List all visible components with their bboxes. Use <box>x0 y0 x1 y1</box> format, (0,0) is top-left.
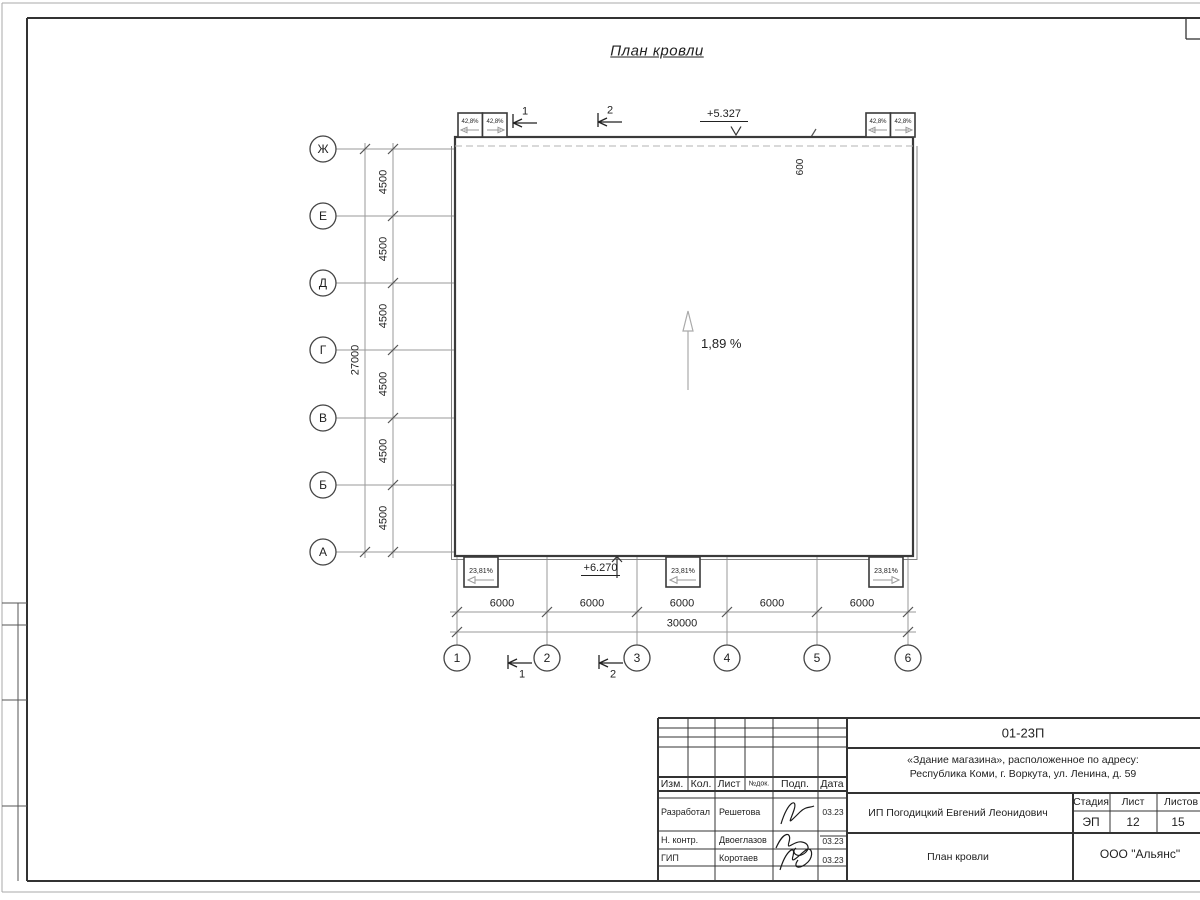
slope-label: 42,8% <box>486 119 504 125</box>
axis-col-label: 5 <box>814 652 821 664</box>
axis-col-label: 4 <box>724 652 731 664</box>
tb-header-podp: Подп. <box>781 779 809 790</box>
elevation-roof: +5.327 <box>700 109 748 122</box>
slope-label: 23,81% <box>874 568 898 575</box>
corner-cell <box>1186 18 1200 39</box>
tb-header-kol: Кол. <box>691 779 712 790</box>
axis-row-label: А <box>319 546 327 558</box>
axis-row-label: Е <box>319 210 327 222</box>
tb-name: Решетова <box>719 808 760 817</box>
drawing-title: План кровли <box>610 44 704 59</box>
dim-row: 4500 <box>379 170 390 194</box>
axis-col-label: 1 <box>454 652 461 664</box>
sheets-label: Листов <box>1164 797 1198 808</box>
dim-col: 6000 <box>850 599 874 610</box>
company-name: ООО "Альянс" <box>1100 848 1180 860</box>
tb-header-list: Лист <box>718 779 741 790</box>
tb-header-izm: Изм. <box>661 779 684 790</box>
section-mark-number: 2 <box>607 106 613 117</box>
slope-label: 42,8% <box>461 119 479 125</box>
axis-col-label: 2 <box>544 652 551 664</box>
axis-row-label: Б <box>319 479 327 491</box>
signatures <box>776 803 814 870</box>
stage-label: Стадия <box>1073 797 1109 808</box>
doc-number: 01-23П <box>1002 727 1045 740</box>
drawing-sheet: 42,8% 42,8% 42,8% 42,8% 23,81% 23,81% 23… <box>0 0 1200 900</box>
dim-col-total: 30000 <box>667 619 698 630</box>
dim-col: 6000 <box>670 599 694 610</box>
axis-row-label: Д <box>319 277 327 289</box>
dim-col: 6000 <box>490 599 514 610</box>
axis-row-label: Ж <box>317 143 328 155</box>
slope-label: 23,81% <box>469 568 493 575</box>
tb-header-ndok: №док. <box>749 781 770 788</box>
tb-role: Н. контр. <box>661 836 698 845</box>
sheets-value: 15 <box>1171 816 1184 828</box>
elevation-canopy: +6.270 <box>581 563 620 576</box>
dim-row: 4500 <box>379 372 390 396</box>
stage-value: ЭП <box>1082 816 1099 828</box>
axis-col-label: 6 <box>905 652 912 664</box>
tb-role: Разработал <box>661 808 710 817</box>
slope-label: 23,81% <box>671 568 695 575</box>
left-margin-cells <box>2 603 27 881</box>
section-mark-number: 2 <box>610 670 616 681</box>
object-address-line1: «Здание магазина», расположенное по адре… <box>907 755 1139 766</box>
canopy-labels-bottom: 23,81% 23,81% 23,81% <box>469 568 898 575</box>
dim-row-total: 27000 <box>351 345 362 376</box>
tb-date: 03.23 <box>822 856 843 865</box>
tb-name: Двоеглазов <box>719 836 767 845</box>
sheet-label: Лист <box>1122 797 1145 808</box>
overhang-dim: 600 <box>796 159 806 176</box>
sheet-title: План кровли <box>927 852 989 863</box>
slope-value: 1,89 % <box>701 337 741 350</box>
dim-row: 4500 <box>379 304 390 328</box>
axis-row-label: В <box>319 412 327 424</box>
dim-row: 4500 <box>379 506 390 530</box>
client-name: ИП Погодицкий Евгений Леонидович <box>868 808 1047 819</box>
sheet-value: 12 <box>1126 816 1139 828</box>
tb-date: 03.23 <box>822 808 843 817</box>
object-address-line2: Республика Коми, г. Воркута, ул. Ленина,… <box>910 769 1137 780</box>
tb-name: Коротаев <box>719 854 758 863</box>
building-outline <box>452 137 918 560</box>
tb-role: ГИП <box>661 854 679 863</box>
axis-row-label: Г <box>320 344 327 356</box>
tb-header-data: Дата <box>820 779 843 790</box>
slope-label: 42,8% <box>894 119 912 125</box>
slope-label: 42,8% <box>869 119 887 125</box>
axis-col-label: 3 <box>634 652 641 664</box>
dim-col: 6000 <box>760 599 784 610</box>
signature-gip <box>780 849 812 870</box>
tb-date: 03.23 <box>822 837 843 846</box>
dim-row: 4500 <box>379 237 390 261</box>
roof-vent-arrows-top <box>461 127 912 132</box>
dim-col: 6000 <box>580 599 604 610</box>
signature-developer <box>781 803 814 824</box>
dim-row: 4500 <box>379 439 390 463</box>
section-mark-number: 1 <box>519 670 525 681</box>
roof-vent-labels-top: 42,8% 42,8% 42,8% 42,8% <box>461 119 912 125</box>
section-mark-number: 1 <box>522 107 528 118</box>
